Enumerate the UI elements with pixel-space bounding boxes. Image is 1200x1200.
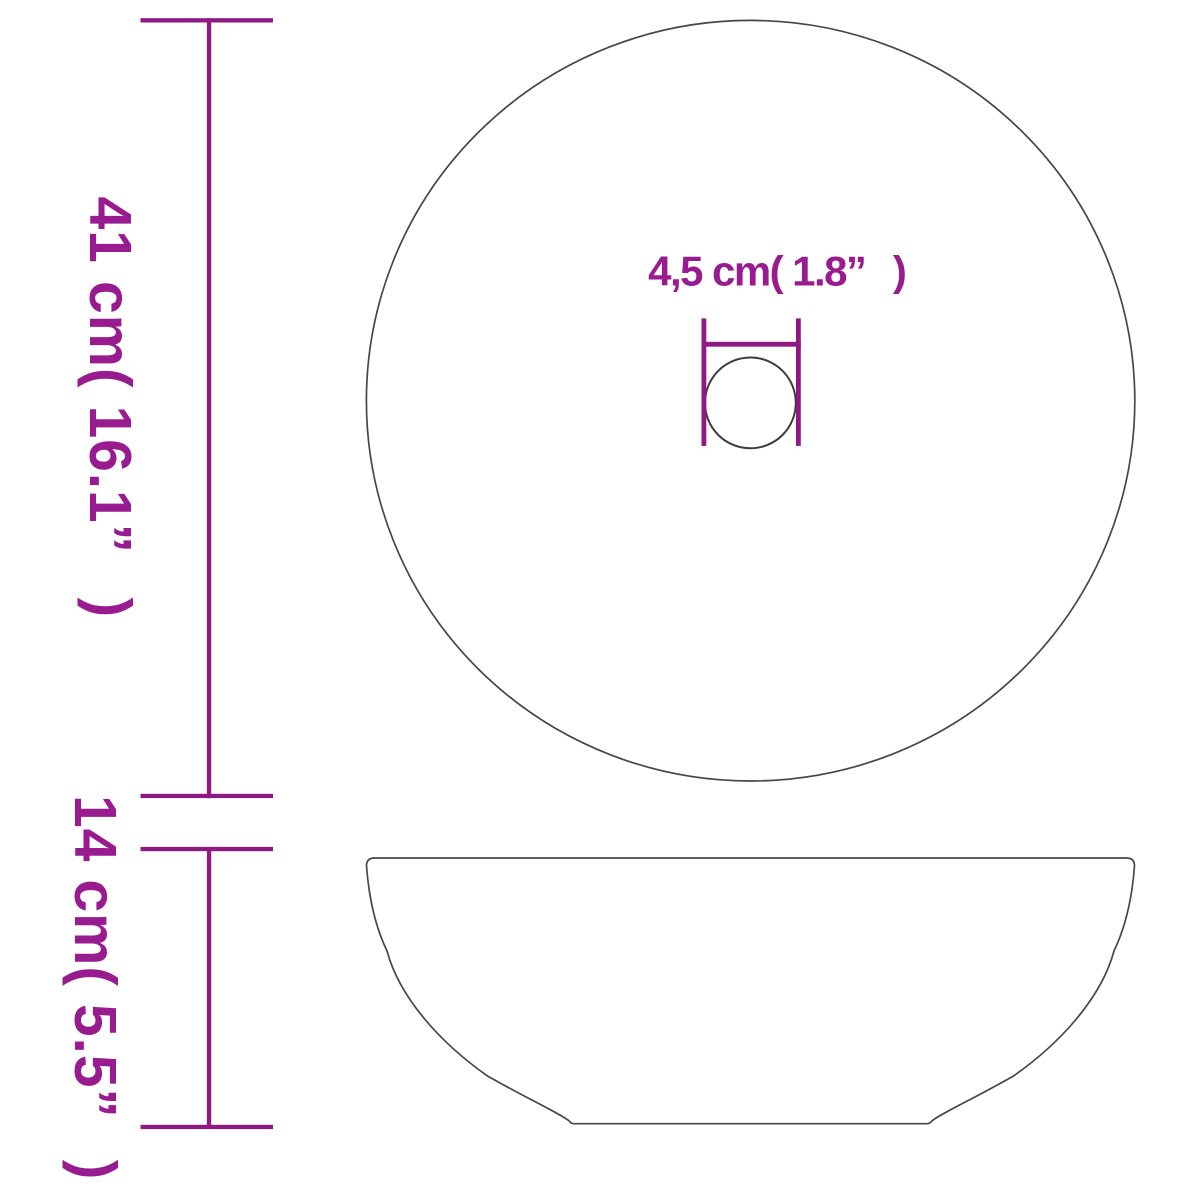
svg-text:14 cm( 5.5” ): 14 cm( 5.5” ) bbox=[62, 795, 128, 1180]
svg-text:41 cm( 16.1” ): 41 cm( 16.1” ) bbox=[77, 197, 143, 618]
